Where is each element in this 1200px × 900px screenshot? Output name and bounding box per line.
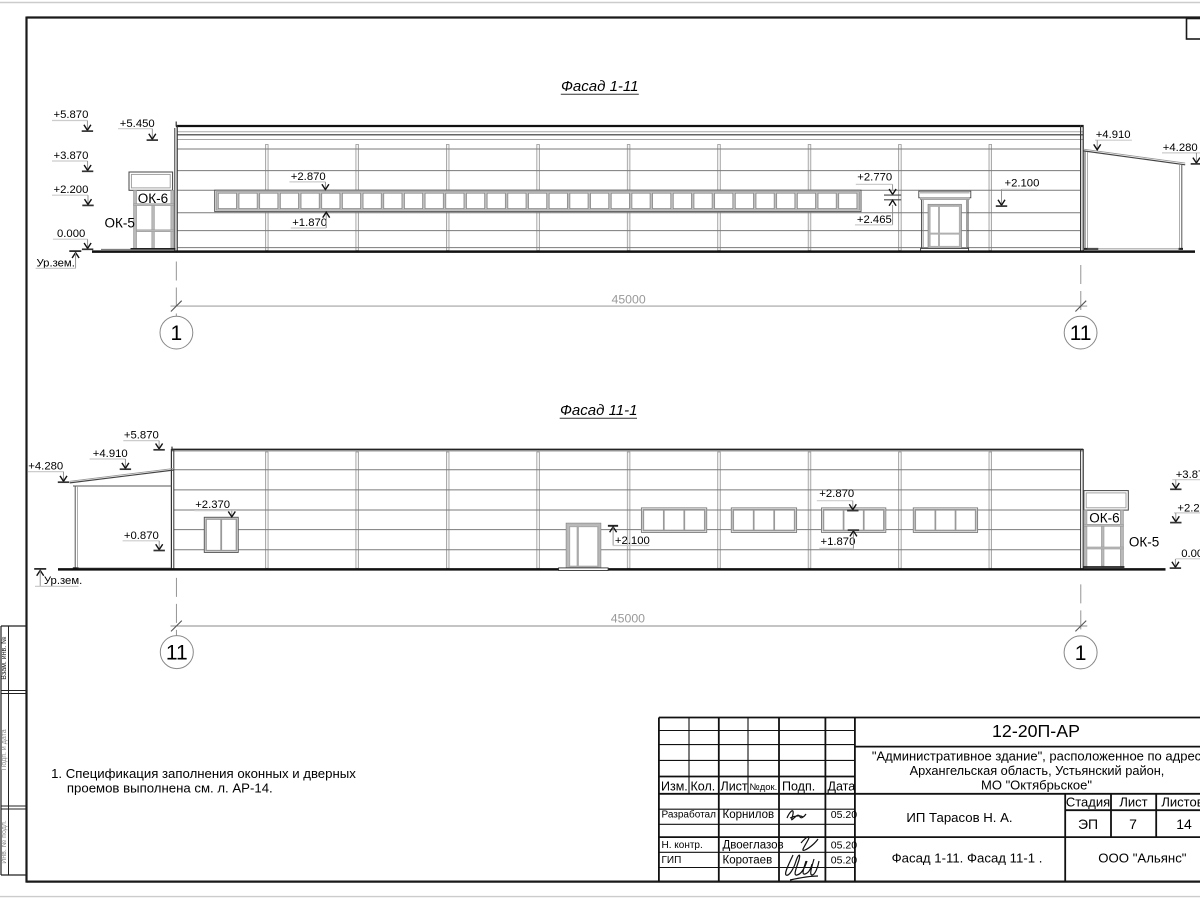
svg-text:1: 1	[1075, 642, 1087, 665]
svg-text:Стадия: Стадия	[1066, 795, 1110, 810]
svg-text:МО "Октябрьское": МО "Октябрьское"	[981, 777, 1092, 792]
svg-text:Инв. № подл.: Инв. № подл.	[1, 820, 8, 864]
svg-text:+4.910: +4.910	[1096, 129, 1131, 141]
svg-text:12-20П-АР: 12-20П-АР	[992, 721, 1080, 741]
svg-text:проемов выполнена см. л. АР-14: проемов выполнена см. л. АР-14.	[67, 781, 273, 796]
svg-text:Ур.зем.: Ур.зем.	[37, 257, 75, 269]
svg-text:+2.770: +2.770	[857, 172, 892, 184]
svg-text:+4.280: +4.280	[1163, 142, 1198, 154]
svg-text:ЭП: ЭП	[1078, 816, 1098, 832]
svg-text:1. Спецификация заполнения око: 1. Спецификация заполнения оконных и две…	[51, 766, 356, 781]
svg-text:"Административное здание", рас: "Административное здание", расположенное…	[872, 748, 1200, 763]
svg-text:11: 11	[166, 642, 188, 665]
svg-text:+2.200: +2.200	[54, 184, 89, 196]
svg-text:+3.870: +3.870	[54, 150, 89, 162]
svg-text:Корнилов: Корнилов	[723, 809, 775, 821]
svg-text:05.20: 05.20	[831, 839, 857, 851]
svg-text:+0.870: +0.870	[124, 530, 159, 542]
svg-text:Фасад 11-1: Фасад 11-1	[560, 402, 637, 419]
svg-text:05.20: 05.20	[831, 809, 857, 821]
svg-text:Взам. инв. №: Взам. инв. №	[1, 636, 8, 679]
svg-text:Дата: Дата	[828, 779, 856, 793]
svg-text:Подп.: Подп.	[782, 779, 815, 793]
svg-text:Коротаев: Коротаев	[723, 855, 773, 867]
svg-text:05.20: 05.20	[831, 854, 857, 866]
svg-text:+2.370: +2.370	[195, 499, 230, 511]
svg-text:Изм.: Изм.	[661, 779, 688, 793]
svg-text:Ур.зем.: Ур.зем.	[44, 575, 82, 587]
svg-text:Подп. и дата: Подп. и дата	[1, 729, 8, 770]
svg-text:ОК-5: ОК-5	[1129, 534, 1159, 549]
svg-text:Кол.: Кол.	[691, 779, 716, 793]
svg-text:+5.870: +5.870	[54, 109, 89, 121]
svg-text:ИП Тарасов Н. А.: ИП Тарасов Н. А.	[906, 810, 1012, 825]
svg-text:11: 11	[1070, 322, 1092, 345]
svg-text:+5.870: +5.870	[124, 429, 159, 441]
svg-text:1: 1	[171, 322, 183, 345]
svg-text:+4.910: +4.910	[93, 448, 128, 460]
svg-text:ГИП: ГИП	[662, 855, 682, 866]
svg-text:+2.465: +2.465	[857, 214, 892, 226]
svg-text:45000: 45000	[611, 611, 645, 625]
svg-text:Н. контр.: Н. контр.	[662, 840, 703, 851]
svg-text:Двоеглазов: Двоеглазов	[723, 840, 784, 852]
svg-text:7: 7	[1129, 816, 1137, 832]
svg-text:+1.870: +1.870	[821, 536, 856, 548]
svg-text:0.000: 0.000	[57, 228, 85, 240]
svg-text:ООО "Альянс": ООО "Альянс"	[1098, 851, 1186, 866]
svg-text:45000: 45000	[611, 293, 645, 307]
svg-text:Фасад 1-11. Фасад 11-1 .: Фасад 1-11. Фасад 11-1 .	[892, 851, 1043, 866]
svg-text:Лист: Лист	[1119, 795, 1147, 810]
svg-text:Архангельская область, Устьянс: Архангельская область, Устьянский район,	[910, 763, 1165, 778]
svg-text:№док.: №док.	[750, 782, 778, 793]
svg-text:ОК-5: ОК-5	[105, 215, 135, 230]
svg-text:+2.100: +2.100	[1005, 178, 1040, 190]
svg-text:+4.280: +4.280	[28, 460, 63, 472]
svg-text:Фасад 1-11: Фасад 1-11	[561, 78, 638, 95]
svg-text:Лист: Лист	[721, 779, 748, 793]
svg-text:0.000: 0.000	[1181, 548, 1200, 560]
svg-text:Разработал: Разработал	[662, 809, 717, 821]
svg-text:14: 14	[1176, 816, 1192, 832]
svg-text:ОК-6: ОК-6	[1089, 511, 1119, 526]
svg-text:Листов: Листов	[1161, 795, 1200, 810]
svg-text:+2.870: +2.870	[819, 488, 854, 500]
